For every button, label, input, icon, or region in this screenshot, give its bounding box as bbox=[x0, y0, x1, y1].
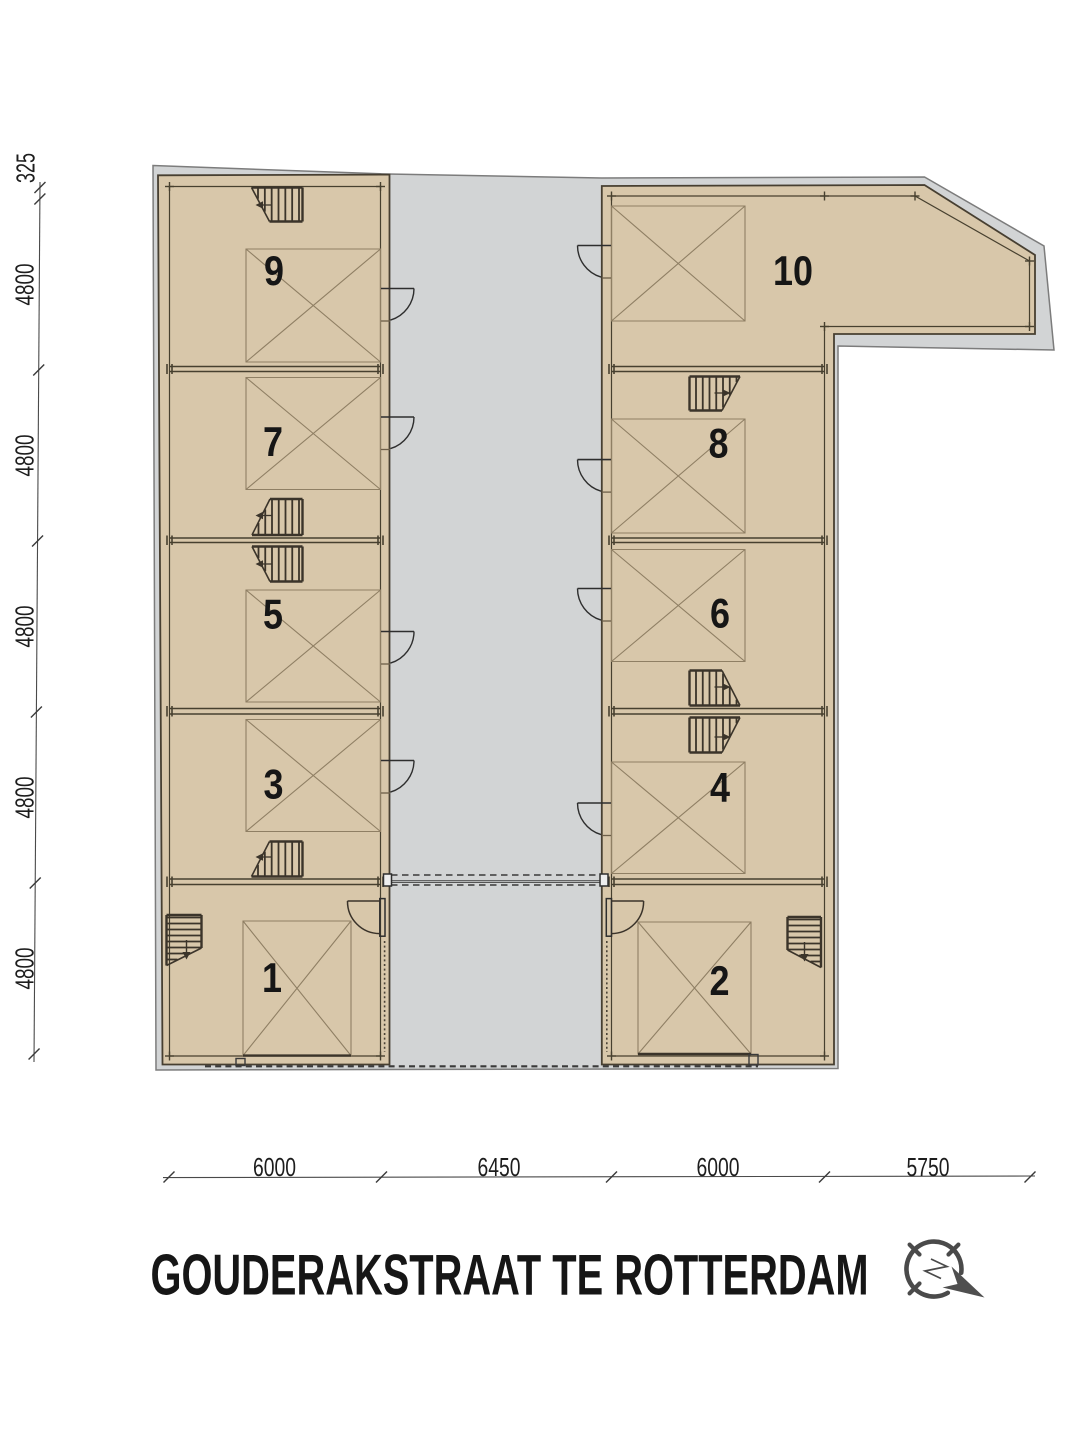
svg-text:6000: 6000 bbox=[253, 1154, 296, 1182]
svg-text:GOUDERAKSTRAAT TE ROTTERDAM: GOUDERAKSTRAAT TE ROTTERDAM bbox=[151, 1244, 869, 1308]
svg-text:1: 1 bbox=[262, 954, 282, 1001]
svg-text:4800: 4800 bbox=[12, 606, 40, 648]
svg-text:4800: 4800 bbox=[12, 948, 40, 990]
svg-text:6: 6 bbox=[710, 590, 730, 637]
svg-text:4800: 4800 bbox=[12, 777, 40, 819]
svg-text:5750: 5750 bbox=[907, 1154, 950, 1182]
svg-text:10: 10 bbox=[773, 247, 813, 294]
svg-text:2: 2 bbox=[710, 957, 730, 1004]
svg-text:7: 7 bbox=[263, 418, 283, 465]
svg-text:4: 4 bbox=[710, 764, 731, 811]
svg-text:4800: 4800 bbox=[12, 264, 40, 306]
svg-text:325: 325 bbox=[13, 153, 41, 183]
svg-text:6000: 6000 bbox=[697, 1154, 740, 1182]
svg-text:9: 9 bbox=[264, 247, 284, 294]
svg-text:3: 3 bbox=[264, 761, 284, 808]
svg-text:5: 5 bbox=[263, 591, 283, 638]
svg-text:4800: 4800 bbox=[12, 435, 40, 477]
svg-text:6450: 6450 bbox=[478, 1154, 521, 1182]
svg-text:8: 8 bbox=[709, 420, 729, 467]
